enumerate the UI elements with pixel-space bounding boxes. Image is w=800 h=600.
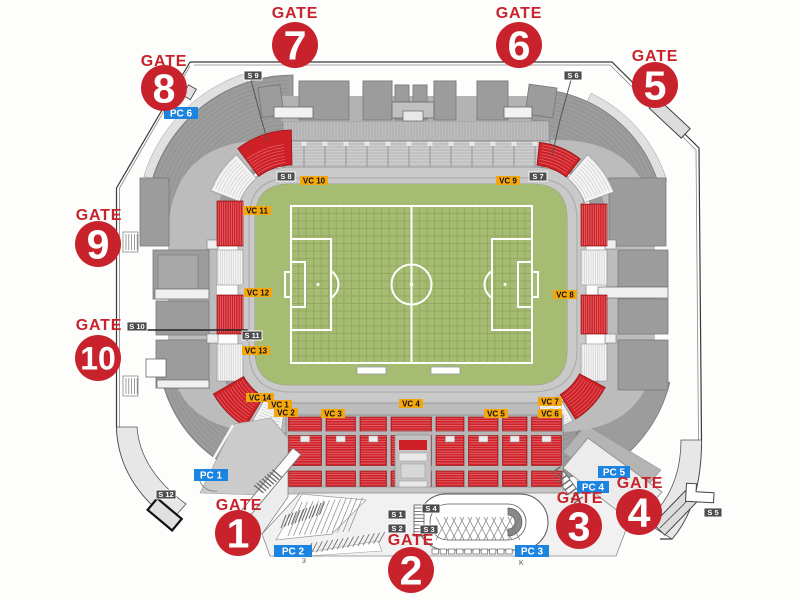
svg-text:S 1: S 1 xyxy=(391,510,402,519)
svg-text:1: 1 xyxy=(227,511,250,557)
svg-text:S 4: S 4 xyxy=(425,504,437,513)
svg-text:3: 3 xyxy=(568,504,591,550)
svg-text:S 5: S 5 xyxy=(707,508,718,517)
svg-text:S 11: S 11 xyxy=(244,331,259,340)
svg-text:8: 8 xyxy=(153,66,176,112)
svg-text:GATE: GATE xyxy=(272,5,318,22)
svg-text:VC 6: VC 6 xyxy=(541,409,559,418)
svg-text:S 6: S 6 xyxy=(567,71,578,80)
svg-text:GATE: GATE xyxy=(496,5,542,22)
svg-text:S 9: S 9 xyxy=(247,71,258,80)
svg-text:VC 2: VC 2 xyxy=(277,408,295,417)
svg-text:10: 10 xyxy=(80,340,116,376)
svg-text:2: 2 xyxy=(400,548,423,594)
svg-text:VC 12: VC 12 xyxy=(247,288,270,297)
svg-text:VC 5: VC 5 xyxy=(487,409,505,418)
svg-text:4: 4 xyxy=(628,490,651,536)
svg-text:GATE: GATE xyxy=(76,317,122,334)
svg-text:VC 11: VC 11 xyxy=(246,206,268,215)
svg-text:PC 2: PC 2 xyxy=(282,547,305,558)
svg-text:K: K xyxy=(519,560,524,567)
svg-text:VC 3: VC 3 xyxy=(324,409,342,418)
svg-text:VC 8: VC 8 xyxy=(556,290,574,299)
svg-text:7: 7 xyxy=(284,23,307,69)
svg-text:6: 6 xyxy=(508,23,531,69)
svg-text:3: 3 xyxy=(302,558,306,565)
svg-text:S 8: S 8 xyxy=(280,172,291,181)
svg-text:9: 9 xyxy=(87,222,110,268)
svg-text:VC 7: VC 7 xyxy=(541,397,559,406)
svg-text:S 12: S 12 xyxy=(158,490,173,499)
svg-text:PC 3: PC 3 xyxy=(521,547,544,558)
svg-text:5: 5 xyxy=(644,63,667,109)
svg-text:S 10: S 10 xyxy=(129,322,144,331)
svg-text:VC 10: VC 10 xyxy=(303,176,326,185)
svg-text:GATE: GATE xyxy=(388,532,434,549)
svg-text:S 7: S 7 xyxy=(532,172,543,181)
svg-text:VC 13: VC 13 xyxy=(245,346,268,355)
svg-text:VC 9: VC 9 xyxy=(499,176,517,185)
svg-text:PC 1: PC 1 xyxy=(200,471,223,482)
svg-text:VC 4: VC 4 xyxy=(402,399,420,408)
